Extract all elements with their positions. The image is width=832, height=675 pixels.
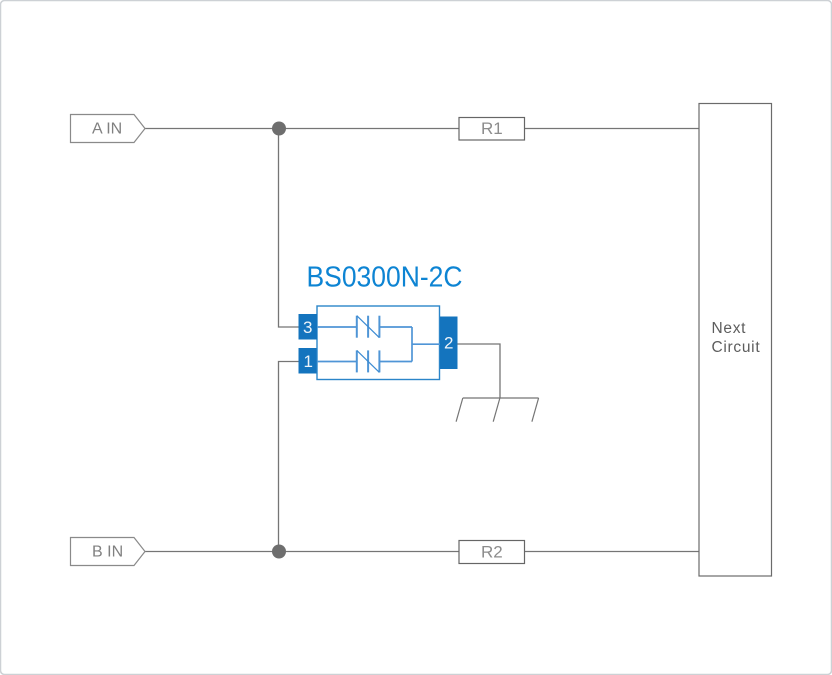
- svg-text:BS0300N-2C: BS0300N-2C: [307, 262, 463, 294]
- svg-text:2: 2: [444, 334, 453, 353]
- svg-text:R1: R1: [481, 119, 503, 138]
- svg-text:R2: R2: [481, 543, 503, 562]
- svg-text:Next: Next: [712, 320, 747, 337]
- svg-text:3: 3: [303, 318, 312, 337]
- svg-text:A IN: A IN: [92, 121, 122, 138]
- svg-text:Circuit: Circuit: [712, 339, 761, 356]
- svg-text:B IN: B IN: [92, 544, 123, 561]
- svg-text:1: 1: [304, 352, 313, 371]
